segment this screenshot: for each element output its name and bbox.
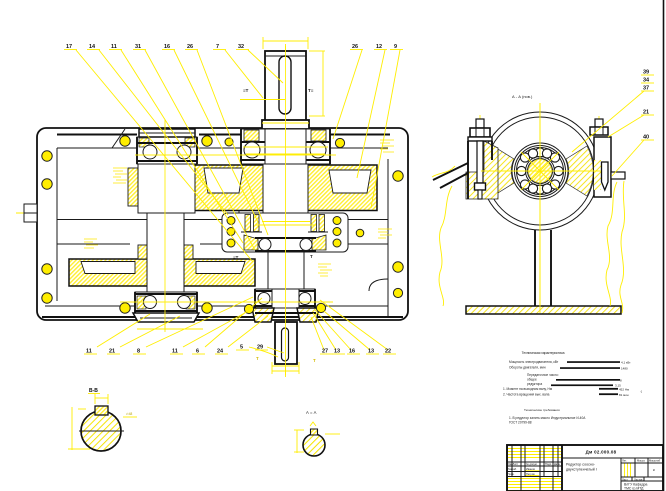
svg-text:T: T: [313, 358, 316, 363]
svg-text:11: 11: [172, 349, 178, 355]
svg-text:39: 39: [643, 70, 649, 76]
svg-text:16: 16: [349, 349, 355, 355]
svg-text:26: 26: [352, 44, 358, 50]
svg-text:T: T: [256, 356, 259, 361]
svg-text:11: 11: [111, 44, 117, 50]
svg-text:Масштаб: Масштаб: [649, 459, 661, 463]
svg-text:Лист: Лист: [622, 477, 628, 481]
svg-text:1. Момент на выходном валу, Нм: 1. Момент на выходном валу, Нм: [503, 387, 552, 391]
svg-text:452 Нм: 452 Нм: [619, 388, 629, 392]
svg-text:T≡: T≡: [308, 88, 314, 93]
svg-text:ТМС гр.МТД: ТМС гр.МТД: [624, 487, 644, 491]
svg-text:Обороты двигателя, мин: Обороты двигателя, мин: [509, 366, 546, 370]
svg-text:11: 11: [86, 349, 92, 355]
svg-text:Пров.: Пров.: [508, 472, 515, 476]
svg-text:1. В редуктор залить масло Инд: 1. В редуктор залить масло Индустриально…: [509, 416, 586, 420]
svg-text:31: 31: [135, 44, 141, 50]
svg-text:21: 21: [643, 110, 649, 116]
svg-text:26: 26: [187, 44, 193, 50]
svg-text:2. Частота вращения вых. вала: 2. Частота вращения вых. вала: [503, 393, 550, 397]
svg-text:Мощность электродвигателя, кВт: Мощность электродвигателя, кВт: [509, 360, 559, 364]
svg-text:Передаточное число:: Передаточное число:: [527, 373, 559, 377]
svg-text:Лист: Лист: [513, 462, 519, 466]
svg-text:40: 40: [643, 135, 649, 141]
svg-text:6: 6: [196, 349, 199, 355]
svg-text:Иванов: Иванов: [526, 467, 536, 471]
svg-text:Техническая характеристика: Техническая характеристика: [522, 351, 565, 355]
svg-text:27: 27: [322, 349, 328, 355]
svg-text:8: 8: [137, 349, 140, 355]
svg-text:1480: 1480: [621, 367, 628, 371]
svg-text:Разраб.: Разраб.: [508, 467, 518, 471]
svg-text:Масса: Масса: [637, 459, 645, 463]
svg-text:ГОСТ 20799-88: ГОСТ 20799-88: [509, 421, 532, 425]
svg-text:Петров: Петров: [526, 472, 535, 476]
svg-text:∅48: ∅48: [126, 412, 133, 416]
svg-text:17: 17: [66, 44, 72, 50]
svg-text:≡T: ≡T: [233, 255, 239, 260]
svg-text:≡T: ≡T: [243, 88, 249, 93]
svg-text:13: 13: [368, 349, 374, 355]
svg-text:22: 22: [385, 349, 391, 355]
svg-text:Дата: Дата: [554, 462, 560, 466]
svg-text:общее: общее: [527, 378, 537, 382]
svg-text:редуктора: редуктора: [527, 382, 542, 386]
svg-text:Дм 02.000.08: Дм 02.000.08: [586, 450, 617, 455]
svg-text:32: 32: [238, 44, 244, 50]
svg-text:7: 7: [216, 44, 219, 50]
svg-text:5: 5: [240, 345, 243, 351]
svg-text:13: 13: [334, 349, 340, 355]
svg-text:14: 14: [89, 44, 96, 50]
svg-text:Листов 1: Листов 1: [634, 477, 645, 481]
svg-text:16: 16: [164, 44, 170, 50]
svg-text:9: 9: [394, 44, 397, 50]
svg-text:21: 21: [109, 349, 115, 355]
svg-text:Редуктор соосно-: Редуктор соосно-: [566, 463, 596, 467]
svg-text:Лит.: Лит.: [622, 459, 627, 463]
svg-text:37: 37: [643, 86, 649, 92]
svg-text:24: 24: [217, 349, 224, 355]
svg-text:двухступенчатый I: двухступенчатый I: [566, 468, 597, 472]
svg-text:к: к: [653, 467, 655, 472]
svg-text:29: 29: [257, 345, 263, 351]
svg-text:12: 12: [376, 44, 382, 50]
svg-text:А - А (пов.): А - А (пов.): [512, 94, 533, 99]
svg-text:81 мин: 81 мин: [619, 393, 629, 397]
svg-text:Подп.: Подп.: [545, 462, 552, 466]
svg-text:4,1 кВт: 4,1 кВт: [621, 361, 631, 365]
svg-text:А = А: А = А: [306, 410, 317, 415]
svg-text:T: T: [310, 254, 313, 259]
svg-text:Технические требования: Технические требования: [524, 408, 560, 412]
svg-text:№ докум.: № докум.: [526, 463, 538, 466]
svg-text:34: 34: [643, 78, 650, 84]
